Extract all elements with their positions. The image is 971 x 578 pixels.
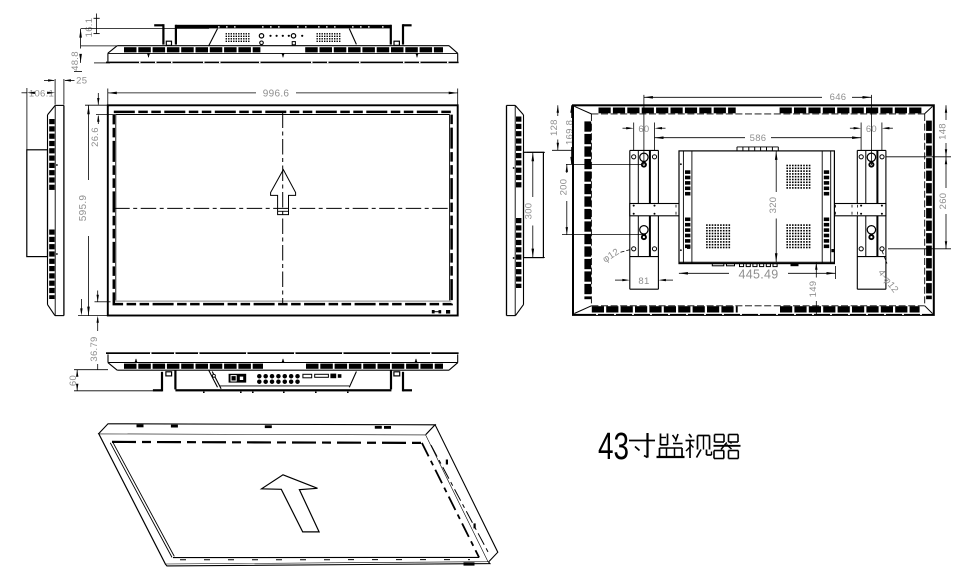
svg-text:586: 586 [750,133,767,144]
svg-text:260: 260 [938,193,949,210]
svg-text:60: 60 [638,124,649,135]
svg-text:595.9: 595.9 [78,195,89,222]
svg-text:149: 149 [808,281,819,298]
svg-text:320: 320 [768,197,779,214]
svg-text:646: 646 [830,92,847,103]
svg-text:48.8: 48.8 [70,51,81,71]
svg-text:26.6: 26.6 [90,127,101,147]
svg-text:128: 128 [549,119,560,136]
svg-text:25: 25 [76,75,87,86]
svg-text:148: 148 [938,123,949,140]
svg-text:43: 43 [598,426,629,468]
svg-text:60: 60 [866,124,877,135]
svg-text:81: 81 [638,276,649,287]
svg-text:200: 200 [559,179,570,196]
svg-text:300: 300 [524,203,535,220]
svg-text:16.1: 16.1 [84,18,95,38]
svg-text:445.49: 445.49 [738,268,778,282]
svg-text:36.79: 36.79 [89,336,100,361]
svg-text:106.1: 106.1 [29,88,54,99]
svg-text:60: 60 [68,375,79,386]
svg-text:996.6: 996.6 [263,88,290,99]
